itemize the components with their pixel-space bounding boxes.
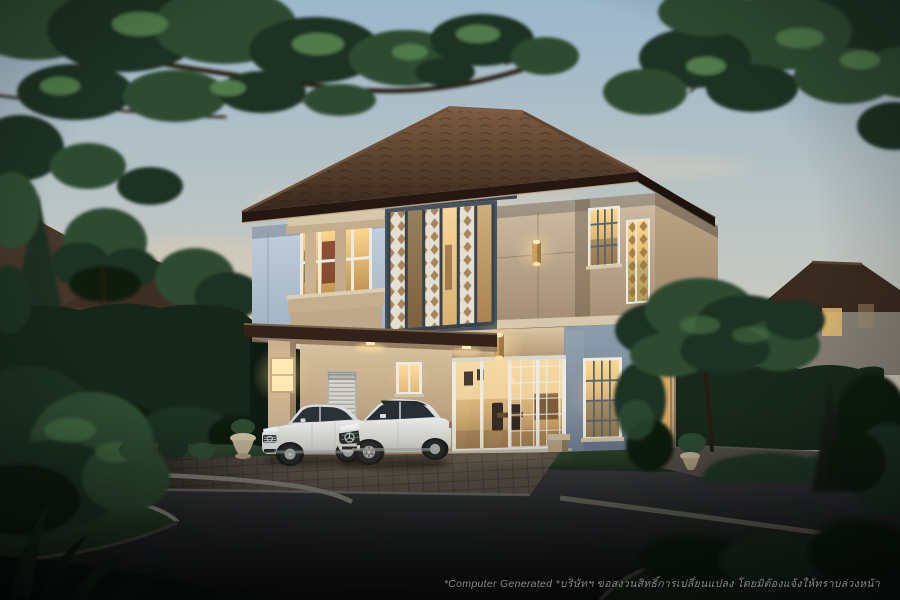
house-rendering: *Computer Generated *บริษัทฯ ขอสงวนสิทธิ… — [0, 0, 900, 600]
bottom-fade — [0, 0, 900, 600]
watermark-text: *Computer Generated *บริษัทฯ ขอสงวนสิทธิ… — [444, 575, 880, 592]
scene — [0, 0, 900, 600]
